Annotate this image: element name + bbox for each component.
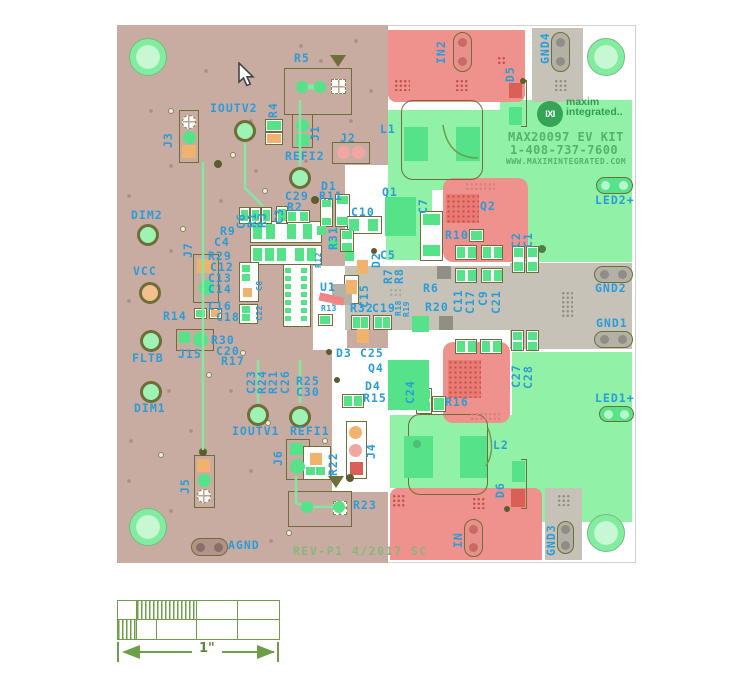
silkscreen-label-u1: U1 <box>320 282 336 294</box>
mouse-cursor <box>238 62 260 90</box>
revision-text: REV-P1 4/2017 SC <box>293 544 428 558</box>
silkscreen-label-r3: R3 <box>257 212 269 228</box>
silkscreen-label-j4: J4 <box>366 443 378 459</box>
silkscreen-label-r19: R19 <box>403 301 411 317</box>
silkscreen-label-r13: R13 <box>321 305 337 313</box>
silkscreen-label-in: IN <box>453 532 465 548</box>
silkscreen-label-c9: C9 <box>478 290 490 306</box>
silkscreen-label-d6: D6 <box>495 482 507 498</box>
silkscreen-label-c17: C17 <box>465 290 477 314</box>
silkscreen-label-c24: C24 <box>405 380 417 404</box>
silkscreen-label-c3: C3 <box>274 208 286 224</box>
silkscreen-label-r23: R23 <box>353 500 377 512</box>
silkscreen-label-refi1: REFI1 <box>290 426 330 438</box>
silkscreen-label-c15: C15 <box>359 284 371 308</box>
maxim-logo-icon: IXI <box>537 101 563 127</box>
silkscreen-label-c18: C18 <box>216 312 240 324</box>
silkscreen-label-c26: C26 <box>280 370 292 394</box>
silkscreen-label-r16: R16 <box>445 397 469 409</box>
silkscreen-label-c1: C1 <box>523 232 535 248</box>
polarity-triangle-bottom <box>328 476 344 488</box>
silkscreen-label-gnd4: GND4 <box>540 32 552 64</box>
silkscreen-label-ioutv1: IOUTV1 <box>232 426 280 438</box>
silkscreen-label-dim2: DIM2 <box>131 210 163 222</box>
silkscreen-label-d2: D2 <box>371 252 383 268</box>
silkscreen-label-refi2: REFI2 <box>285 151 325 163</box>
silkscreen-label-q2: Q2 <box>480 201 496 213</box>
silkscreen-label-c14: C14 <box>208 284 232 296</box>
silkscreen-label-led1: LED1+ <box>595 393 635 405</box>
silkscreen-label-c4: C4 <box>214 237 230 249</box>
silkscreen-label-gnd3: GND3 <box>546 524 558 556</box>
silkscreen-label-d5: D5 <box>505 66 517 82</box>
kit-title-text: MAX20097 EV KIT <box>508 131 624 143</box>
silkscreen-label-c21: C21 <box>491 290 503 314</box>
silkscreen-label-j6: J6 <box>273 450 285 466</box>
silkscreen-label-j7: J7 <box>183 242 195 258</box>
maxim-wordmark-bottom: integrated.. <box>566 107 623 117</box>
silkscreen-label-r22: R22 <box>328 452 340 476</box>
silkscreen-label-dim1: DIM1 <box>134 403 166 415</box>
website-text: WWW.MAXIMINTEGRATED.COM <box>506 158 626 166</box>
silkscreen-label-r14: R14 <box>163 311 187 323</box>
silkscreen-label-r5: R5 <box>294 53 310 65</box>
silkscreen-label-q1: Q1 <box>382 187 398 199</box>
silkscreen-label-r8: R8 <box>394 268 406 284</box>
silkscreen-label-j2: J2 <box>340 133 356 145</box>
silkscreen-label-ioutv2: IOUTV2 <box>210 103 258 115</box>
silkscreen-label-r20: R20 <box>425 302 449 314</box>
silkscreen-label-r31: R31 <box>328 226 340 250</box>
silkscreen-label-c28: C28 <box>523 365 535 389</box>
silkscreen-label-c8: C8 <box>256 280 264 291</box>
silkscreen-label-l2: L2 <box>493 440 509 452</box>
silkscreen-label-r17: R17 <box>221 356 245 368</box>
silkscreen-label-vcc: VCC <box>133 266 157 278</box>
silkscreen-label-led2: LED2+ <box>595 195 635 207</box>
silkscreen-label-j1: J1 <box>310 125 322 141</box>
silkscreen-label-c10: C10 <box>351 207 375 219</box>
pcb-layout-view: R5IOUTV2REFI2J2D1R11C29R2C10Q1Q2R10C5R6R… <box>0 0 736 679</box>
silkscreen-label-c25: C25 <box>360 348 384 360</box>
silkscreen-label-gnd2: GND2 <box>595 283 627 295</box>
silkscreen-label-j3: J3 <box>163 132 175 148</box>
silkscreen-label-r15: R15 <box>363 393 387 405</box>
copper-traces <box>0 0 736 679</box>
silkscreen-label-r6: R6 <box>423 283 439 295</box>
polarity-triangle-top <box>330 55 346 67</box>
silkscreen-label-c7: C7 <box>418 198 430 214</box>
silkscreen-label-agnd: AGND <box>228 540 260 552</box>
silkscreen-label-fltb: FLTB <box>132 353 164 365</box>
silkscreen-label-d3: D3 <box>336 348 352 360</box>
silkscreen-label-r12: R12 <box>315 252 323 268</box>
silkscreen-label-r10: R10 <box>445 230 469 242</box>
phone-text: 1-408-737-7600 <box>510 144 618 156</box>
silkscreen-label-r2: R2 <box>287 202 303 214</box>
silkscreen-label-c30: C30 <box>296 387 320 399</box>
scale-bar-label: 1" <box>199 641 215 656</box>
silkscreen-label-c22: C22 <box>256 305 264 321</box>
silkscreen-label-gnd1: GND1 <box>596 318 628 330</box>
silkscreen-label-r4: R4 <box>268 102 280 118</box>
silkscreen-label-l1: L1 <box>380 124 396 136</box>
silkscreen-label-j15: J15 <box>178 349 202 361</box>
silkscreen-label-c19: C19 <box>372 303 396 315</box>
silkscreen-label-in2: IN2 <box>436 40 448 64</box>
silkscreen-label-r11: R11 <box>319 191 343 203</box>
silkscreen-label-q4: Q4 <box>368 363 384 375</box>
maxim-wordmark: maxim integrated.. <box>566 97 623 117</box>
silkscreen-label-j5: J5 <box>180 478 192 494</box>
